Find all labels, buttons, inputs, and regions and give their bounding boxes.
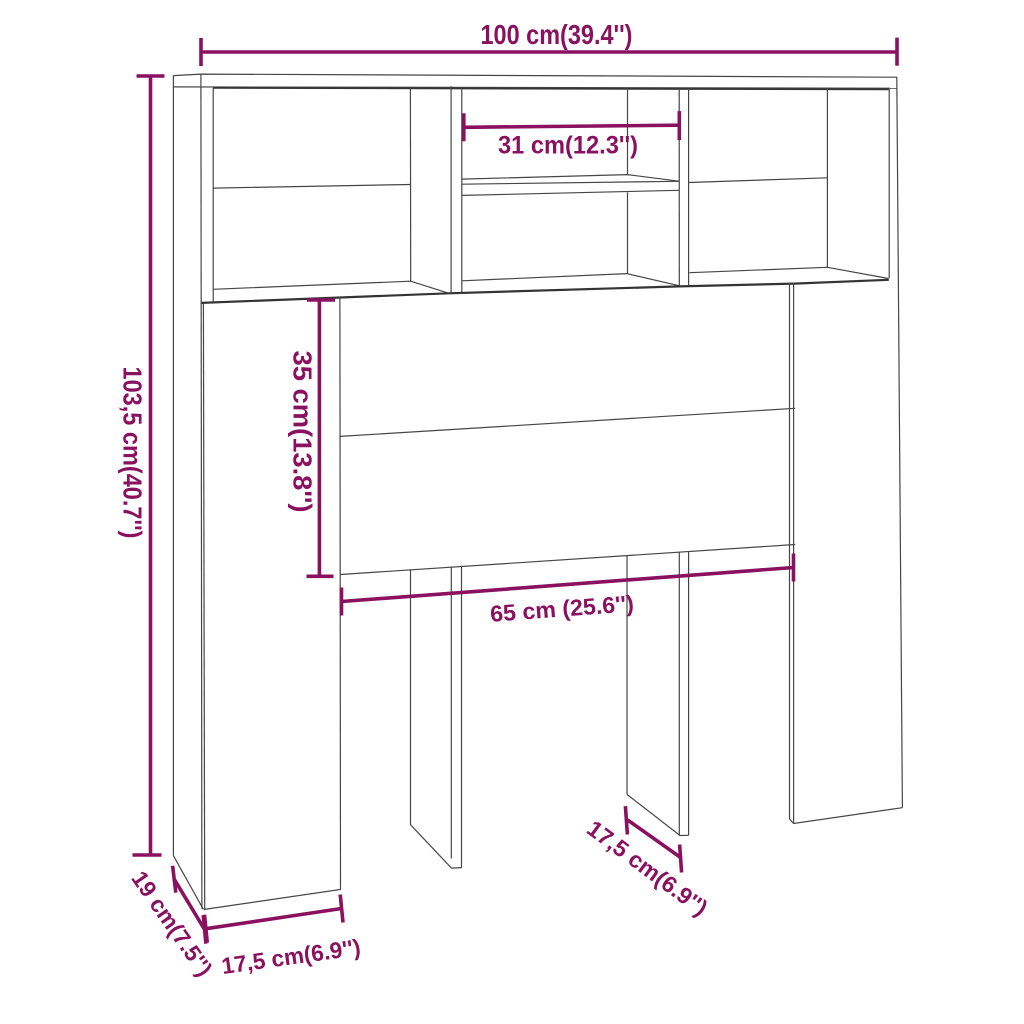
svg-text:17,5 cm(6.9''): 17,5 cm(6.9'') [582,815,712,921]
svg-text:17,5 cm(6.9''): 17,5 cm(6.9'') [220,934,362,979]
svg-text:35 cm(13.8''): 35 cm(13.8'') [288,351,316,513]
svg-text:103,5 cm(40.7''): 103,5 cm(40.7'') [118,367,148,539]
svg-text:100 cm(39.4''): 100 cm(39.4'') [481,19,633,50]
svg-text:65 cm (25.6''): 65 cm (25.6'') [489,590,635,627]
svg-text:31 cm(12.3''): 31 cm(12.3'') [498,132,638,160]
